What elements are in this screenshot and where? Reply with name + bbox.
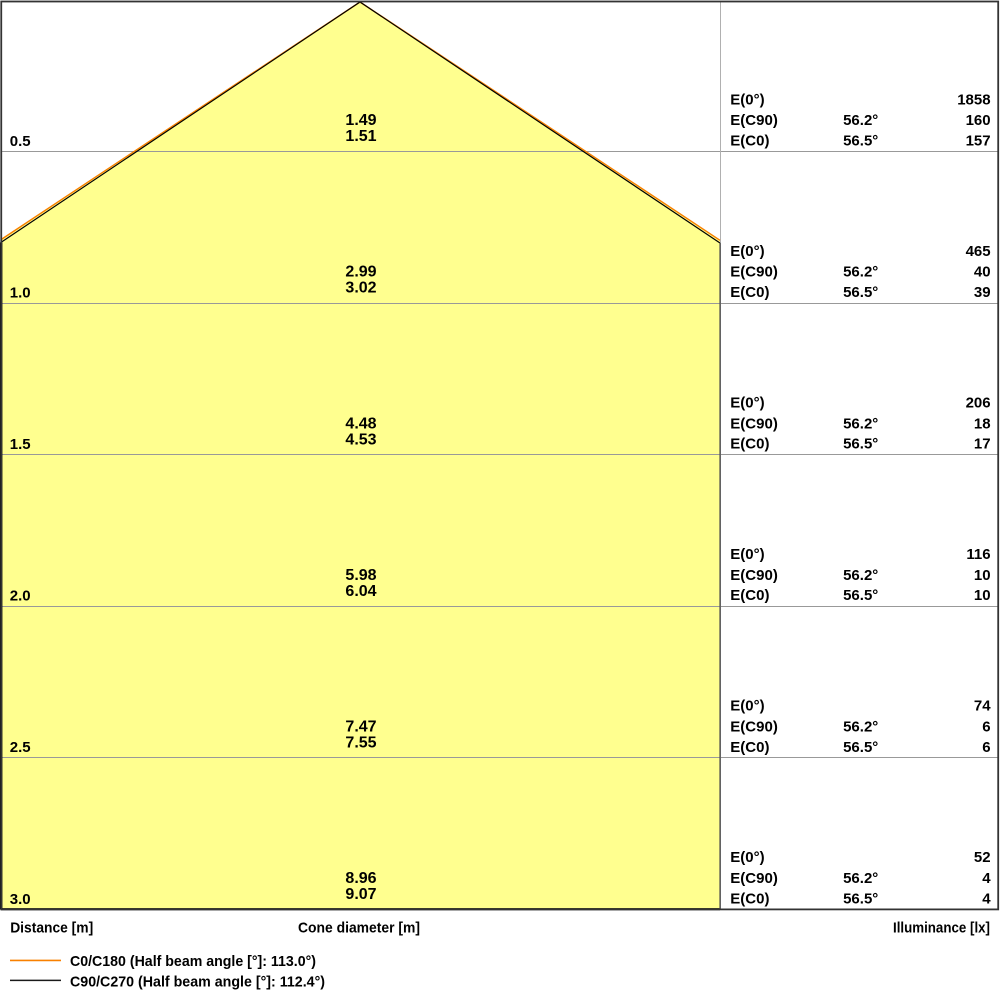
svg-text:5.98: 5.98 bbox=[345, 567, 376, 584]
svg-text:1.0: 1.0 bbox=[10, 285, 31, 302]
svg-text:2.99: 2.99 bbox=[345, 264, 376, 281]
svg-text:10: 10 bbox=[974, 567, 991, 584]
svg-text:E(C90): E(C90) bbox=[730, 870, 778, 887]
svg-text:E(C0): E(C0) bbox=[730, 436, 769, 453]
svg-text:E(C0): E(C0) bbox=[730, 133, 769, 150]
svg-text:116: 116 bbox=[966, 546, 990, 563]
svg-text:8.96: 8.96 bbox=[345, 870, 376, 887]
svg-text:6: 6 bbox=[982, 739, 990, 756]
svg-text:52: 52 bbox=[974, 849, 991, 866]
svg-text:4.53: 4.53 bbox=[345, 431, 376, 448]
svg-text:56.5°: 56.5° bbox=[843, 133, 878, 150]
svg-text:E(C0): E(C0) bbox=[730, 890, 769, 907]
svg-text:6.04: 6.04 bbox=[345, 583, 376, 600]
svg-text:3.0: 3.0 bbox=[10, 891, 31, 908]
svg-text:E(0°): E(0°) bbox=[730, 243, 764, 260]
svg-text:1.51: 1.51 bbox=[345, 128, 376, 145]
svg-text:E(C90): E(C90) bbox=[730, 415, 778, 432]
svg-text:56.2°: 56.2° bbox=[843, 567, 878, 584]
svg-text:56.2°: 56.2° bbox=[843, 415, 878, 432]
svg-text:56.2°: 56.2° bbox=[843, 718, 878, 735]
svg-text:1.49: 1.49 bbox=[345, 112, 376, 129]
svg-text:2.5: 2.5 bbox=[10, 739, 31, 756]
svg-text:7.47: 7.47 bbox=[345, 718, 376, 735]
svg-text:4: 4 bbox=[982, 890, 991, 907]
svg-text:56.2°: 56.2° bbox=[843, 870, 878, 887]
svg-text:E(0°): E(0°) bbox=[730, 395, 764, 412]
svg-text:6: 6 bbox=[982, 718, 990, 735]
svg-text:C90/C270 (Half beam angle [°]:: C90/C270 (Half beam angle [°]: 112.4°) bbox=[70, 974, 325, 990]
svg-text:E(0°): E(0°) bbox=[730, 91, 764, 108]
svg-text:E(C90): E(C90) bbox=[730, 264, 778, 281]
svg-text:56.5°: 56.5° bbox=[843, 284, 878, 301]
svg-text:17: 17 bbox=[974, 436, 991, 453]
svg-text:E(0°): E(0°) bbox=[730, 698, 764, 715]
svg-text:56.5°: 56.5° bbox=[843, 436, 878, 453]
svg-text:160: 160 bbox=[966, 112, 991, 129]
svg-text:4: 4 bbox=[982, 870, 991, 887]
svg-text:Distance [m]: Distance [m] bbox=[10, 920, 93, 937]
svg-text:E(C90): E(C90) bbox=[730, 112, 778, 129]
svg-text:56.2°: 56.2° bbox=[843, 264, 878, 281]
svg-text:2.0: 2.0 bbox=[10, 588, 31, 605]
svg-text:E(C0): E(C0) bbox=[730, 739, 769, 756]
svg-text:E(C0): E(C0) bbox=[730, 587, 769, 604]
svg-text:56.5°: 56.5° bbox=[843, 890, 878, 907]
svg-text:3.02: 3.02 bbox=[345, 280, 376, 297]
svg-text:1858: 1858 bbox=[957, 91, 990, 108]
svg-text:Cone diameter [m]: Cone diameter [m] bbox=[298, 920, 420, 937]
svg-text:Illuminance [lx]: Illuminance [lx] bbox=[893, 920, 990, 937]
svg-text:40: 40 bbox=[974, 264, 991, 281]
svg-text:56.5°: 56.5° bbox=[843, 739, 878, 756]
svg-text:39: 39 bbox=[974, 284, 991, 301]
svg-text:E(C90): E(C90) bbox=[730, 567, 778, 584]
svg-text:10: 10 bbox=[974, 587, 991, 604]
svg-text:9.07: 9.07 bbox=[345, 886, 376, 903]
svg-text:4.48: 4.48 bbox=[345, 415, 376, 432]
svg-text:E(C90): E(C90) bbox=[730, 718, 778, 735]
svg-text:0.5: 0.5 bbox=[10, 133, 31, 150]
svg-text:7.55: 7.55 bbox=[345, 734, 376, 751]
svg-text:E(C0): E(C0) bbox=[730, 284, 769, 301]
svg-text:C0/C180 (Half beam angle [°]:: C0/C180 (Half beam angle [°]: 113.0°) bbox=[70, 954, 316, 970]
svg-text:74: 74 bbox=[974, 698, 991, 715]
svg-text:465: 465 bbox=[966, 243, 991, 260]
svg-text:18: 18 bbox=[974, 415, 991, 432]
svg-text:E(0°): E(0°) bbox=[730, 849, 764, 866]
svg-text:157: 157 bbox=[966, 133, 991, 150]
svg-text:56.2°: 56.2° bbox=[843, 112, 878, 129]
svg-text:206: 206 bbox=[966, 395, 991, 412]
svg-text:56.5°: 56.5° bbox=[843, 587, 878, 604]
svg-text:1.5: 1.5 bbox=[10, 436, 31, 453]
svg-text:E(0°): E(0°) bbox=[730, 546, 764, 563]
